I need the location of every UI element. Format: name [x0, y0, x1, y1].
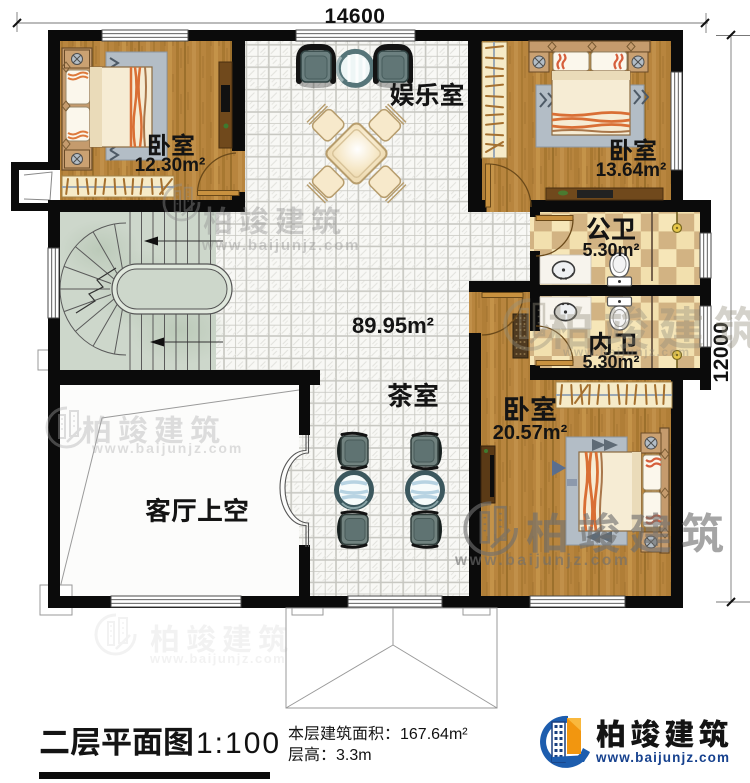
svg-text:12.30m²: 12.30m² — [135, 155, 206, 176]
svg-text:12000: 12000 — [710, 322, 733, 383]
svg-text:20.57m²: 20.57m² — [493, 422, 568, 444]
svg-text:13.64m²: 13.64m² — [596, 160, 667, 181]
svg-text:www.baijunjz.com: www.baijunjz.com — [454, 552, 630, 569]
svg-text:www.baijunjz.com: www.baijunjz.com — [595, 750, 730, 765]
svg-text:www.baijunjz.com: www.baijunjz.com — [91, 440, 243, 456]
svg-text:www.baijunjz.com: www.baijunjz.com — [149, 651, 286, 666]
svg-text:5.30m²: 5.30m² — [582, 240, 639, 260]
svg-text:3.3m: 3.3m — [336, 747, 372, 764]
svg-text:1:100: 1:100 — [196, 727, 281, 760]
svg-text:89.95m²: 89.95m² — [352, 313, 434, 338]
svg-text:167.64m²: 167.64m² — [400, 726, 468, 743]
svg-text:www.baijunjz.com: www.baijunjz.com — [201, 237, 360, 254]
svg-text:14600: 14600 — [325, 5, 386, 28]
svg-text:www.baijunjz.com: www.baijunjz.com — [562, 345, 691, 359]
